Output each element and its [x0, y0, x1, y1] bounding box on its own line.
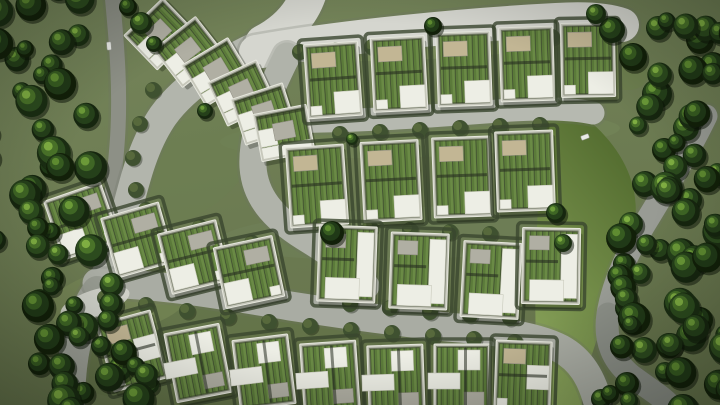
aerial-site-render	[0, 0, 720, 405]
aerial-render-canvas	[0, 0, 720, 405]
vignette-overlay	[0, 0, 720, 405]
